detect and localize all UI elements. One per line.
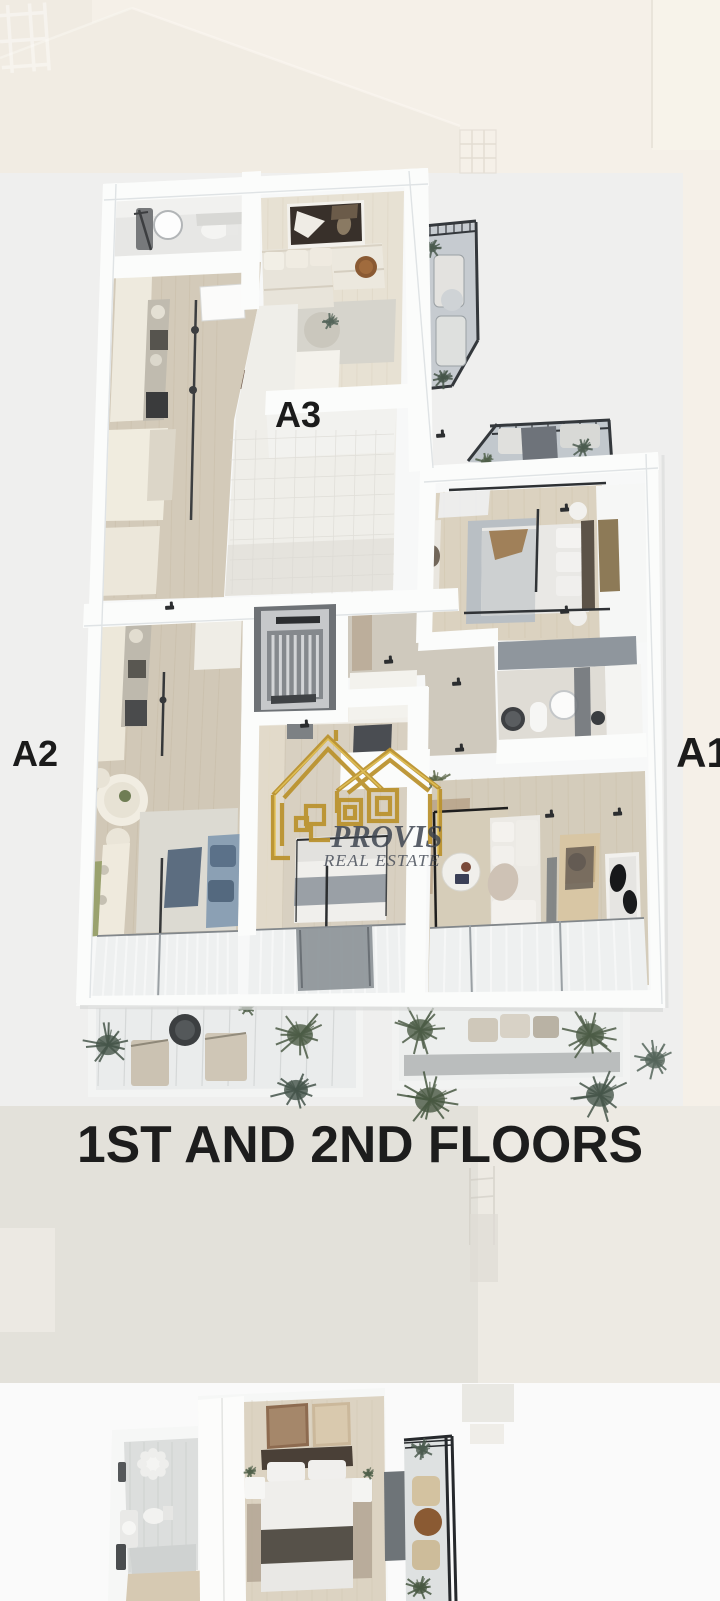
svg-text:A1: A1 <box>676 729 720 776</box>
svg-text:PROVIS: PROVIS <box>331 818 443 854</box>
svg-text:A2: A2 <box>12 733 58 774</box>
svg-text:A3: A3 <box>275 394 321 435</box>
svg-text:1ST AND 2ND FLOORS: 1ST AND 2ND FLOORS <box>77 1116 643 1174</box>
svg-text:REAL ESTATE: REAL ESTATE <box>322 851 440 870</box>
